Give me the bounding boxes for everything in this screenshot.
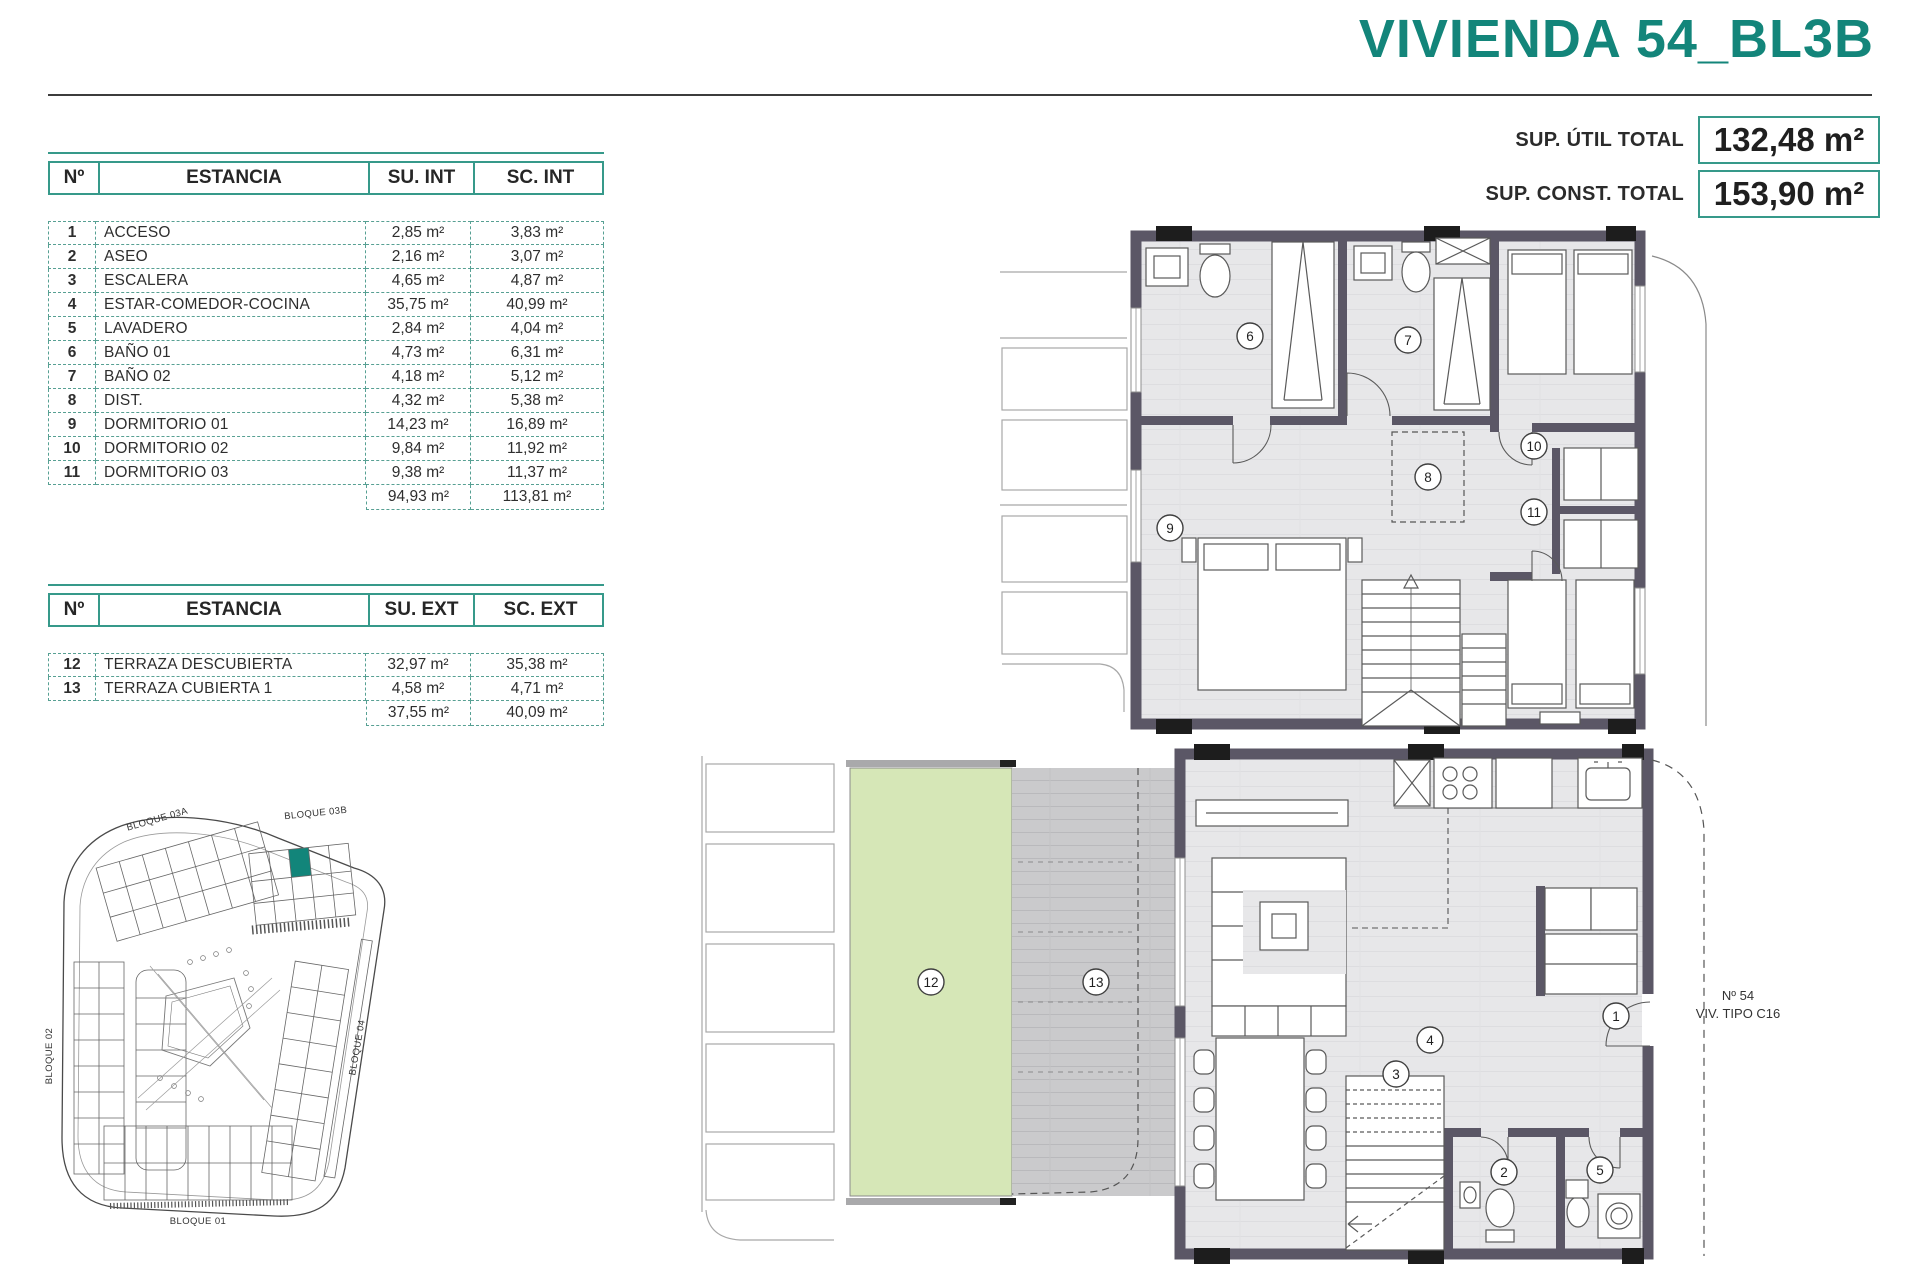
header-rule [48, 94, 1872, 96]
terrace-column [1000, 760, 1016, 767]
col-header-su: SU. EXT [368, 595, 473, 625]
cell-su: 2,16 m² [366, 245, 471, 269]
cell-num: 2 [48, 245, 96, 269]
total-su: 94,93 m² [366, 485, 471, 510]
plan-sheet: VIVIENDA 54_BL3B SUP. ÚTIL TOTAL 132,48 … [0, 0, 1920, 1280]
total-sc: 40,09 m² [471, 701, 604, 726]
cell-num: 13 [48, 677, 96, 701]
cell-num: 12 [48, 653, 96, 677]
table-total-row: 94,93 m² 113,81 m² [366, 485, 604, 510]
cell-sc: 5,12 m² [471, 365, 604, 389]
cell-su: 9,38 m² [366, 461, 471, 485]
built-area-label: SUP. CONST. TOTAL [1486, 183, 1684, 206]
table-body: 12TERRAZA DESCUBIERTA32,97 m²35,38 m²13T… [48, 653, 604, 701]
block-03a-units [96, 822, 278, 941]
total-sc: 113,81 m² [471, 485, 604, 510]
cell-room: BAÑO 01 [96, 341, 366, 365]
plot-boundary-line [1652, 256, 1706, 726]
cell-sc: 35,38 m² [471, 653, 604, 677]
cell-sc: 4,87 m² [471, 269, 604, 293]
unit-number-label: Nº 54 [1722, 988, 1754, 1003]
table-row: 3ESCALERA4,65 m²4,87 m² [48, 269, 604, 293]
block-02-label: BLOQUE 02 [44, 1028, 55, 1084]
room-badge: 11 [1521, 499, 1547, 525]
svg-text:2: 2 [1500, 1165, 1508, 1180]
site-location-plan: BLOQUE 03A BLOQUE 03B BLOQUE 02 BLOQUE 0… [40, 792, 400, 1232]
ground-floor-plan: Nº 54 VIV. TIPO C16 1 2 3 4 5 12 13 [700, 742, 1780, 1267]
cell-su: 9,84 m² [366, 437, 471, 461]
table-total-row: 37,55 m² 40,09 m² [366, 701, 604, 726]
cell-room: ACCESO [96, 221, 366, 245]
table-row: 12TERRAZA DESCUBIERTA32,97 m²35,38 m² [48, 653, 604, 677]
table-row: 4ESTAR-COMEDOR-COCINA35,75 m²40,99 m² [48, 293, 604, 317]
parking-hatch-strip [252, 922, 350, 930]
cell-su: 35,75 m² [366, 293, 471, 317]
table-row: 5LAVADERO2,84 m²4,04 m² [48, 317, 604, 341]
room-badge: 6 [1237, 323, 1263, 349]
room-badge: 4 [1417, 1027, 1443, 1053]
block-02-units [74, 962, 124, 1174]
cell-sc: 3,07 m² [471, 245, 604, 269]
table-header: Nº ESTANCIA SU. INT SC. INT [48, 161, 604, 195]
cell-room: DORMITORIO 02 [96, 437, 366, 461]
cell-room: ASEO [96, 245, 366, 269]
svg-text:4: 4 [1426, 1033, 1434, 1048]
room-badge: 10 [1521, 433, 1547, 459]
table-row: 6BAÑO 014,73 m²6,31 m² [48, 341, 604, 365]
terrace-top-rail [846, 760, 1016, 767]
bottom-hatch-strip [110, 1202, 290, 1206]
table-row: 7BAÑO 024,18 m²5,12 m² [48, 365, 604, 389]
svg-text:8: 8 [1424, 470, 1432, 485]
terrace-bottom-rail [846, 1198, 1016, 1205]
cell-num: 3 [48, 269, 96, 293]
svg-text:12: 12 [923, 975, 938, 990]
room-badge: 1 [1603, 1003, 1629, 1029]
useful-area-label: SUP. ÚTIL TOTAL [1515, 129, 1684, 152]
block-03b-label: BLOQUE 03B [284, 805, 348, 823]
upper-floor-plan: 6 7 8 9 10 11 [1000, 220, 1740, 740]
cell-sc: 11,92 m² [471, 437, 604, 461]
sofa-group [1212, 858, 1346, 1036]
total-su: 37,55 m² [366, 701, 471, 726]
cell-room: ESCALERA [96, 269, 366, 293]
cell-room: TERRAZA DESCUBIERTA [96, 653, 366, 677]
cell-su: 4,32 m² [366, 389, 471, 413]
svg-text:3: 3 [1392, 1067, 1400, 1082]
cell-sc: 16,89 m² [471, 413, 604, 437]
unit-type-label: VIV. TIPO C16 [1696, 1006, 1780, 1021]
room-badge: 12 [918, 969, 944, 995]
svg-text:11: 11 [1527, 505, 1541, 520]
internal-paths [138, 966, 280, 1110]
cell-num: 11 [48, 461, 96, 485]
master-bed [1182, 538, 1362, 690]
room-badge: 3 [1383, 1061, 1409, 1087]
cell-sc: 5,38 m² [471, 389, 604, 413]
adjacent-units-outline [1000, 272, 1127, 712]
col-header-sc: SC. INT [473, 163, 606, 193]
cell-sc: 3,83 m² [471, 221, 604, 245]
col-header-num: Nº [50, 163, 98, 193]
table-top-rule [48, 152, 604, 154]
trees [158, 948, 254, 1102]
cell-num: 7 [48, 365, 96, 389]
cell-su: 2,85 m² [366, 221, 471, 245]
cell-num: 6 [48, 341, 96, 365]
cell-room: ESTAR-COMEDOR-COCINA [96, 293, 366, 317]
cell-num: 9 [48, 413, 96, 437]
table-row: 13TERRAZA CUBIERTA 14,58 m²4,71 m² [48, 677, 604, 701]
table-row: 2ASEO2,16 m²3,07 m² [48, 245, 604, 269]
svg-text:5: 5 [1596, 1163, 1604, 1178]
svg-text:13: 13 [1088, 975, 1103, 990]
cell-room: DORMITORIO 03 [96, 461, 366, 485]
block-04-label: BLOQUE 04 [347, 1019, 368, 1076]
table-row: 8DIST.4,32 m²5,38 m² [48, 389, 604, 413]
svg-text:1: 1 [1612, 1009, 1620, 1024]
svg-text:9: 9 [1166, 521, 1174, 536]
table-top-rule [48, 584, 604, 586]
cell-room: DIST. [96, 389, 366, 413]
cell-su: 4,18 m² [366, 365, 471, 389]
block-01-units [104, 1126, 292, 1200]
built-area-value: 153,90 m² [1698, 170, 1880, 218]
exterior-area-table: Nº ESTANCIA SU. EXT SC. EXT 12TERRAZA DE… [48, 584, 604, 726]
useful-area-value: 132,48 m² [1698, 116, 1880, 164]
room-badge: 9 [1157, 515, 1183, 541]
cell-su: 14,23 m² [366, 413, 471, 437]
table-row: 9DORMITORIO 0114,23 m²16,89 m² [48, 413, 604, 437]
room-badge: 13 [1083, 969, 1109, 995]
interior-area-table: Nº ESTANCIA SU. INT SC. INT 1ACCESO2,85 … [48, 152, 604, 510]
svg-text:6: 6 [1246, 329, 1254, 344]
table-row: 10DORMITORIO 029,84 m²11,92 m² [48, 437, 604, 461]
table-header: Nº ESTANCIA SU. EXT SC. EXT [48, 593, 604, 627]
block-03a-label: BLOQUE 03A [125, 806, 189, 834]
useful-area-summary: SUP. ÚTIL TOTAL 132,48 m² [1515, 116, 1880, 164]
table-row: 1ACCESO2,85 m²3,83 m² [48, 221, 604, 245]
room-badge: 8 [1415, 464, 1441, 490]
col-header-sc: SC. EXT [473, 595, 606, 625]
block-03b-units [249, 843, 356, 925]
cell-room: DORMITORIO 01 [96, 413, 366, 437]
highlighted-unit-marker [289, 847, 312, 877]
svg-text:10: 10 [1526, 439, 1541, 454]
cell-sc: 6,31 m² [471, 341, 604, 365]
cell-num: 1 [48, 221, 96, 245]
cell-sc: 4,04 m² [471, 317, 604, 341]
svg-text:7: 7 [1404, 333, 1412, 348]
page-title: VIVIENDA 54_BL3B [1359, 8, 1874, 70]
col-header-num: Nº [50, 595, 98, 625]
tv-bench [1196, 800, 1348, 826]
cell-sc: 40,99 m² [471, 293, 604, 317]
col-header-room: ESTANCIA [98, 595, 368, 625]
terrace-column [1000, 1198, 1016, 1205]
cell-num: 8 [48, 389, 96, 413]
col-header-su: SU. INT [368, 163, 473, 193]
entry-closet [1536, 886, 1637, 996]
col-header-room: ESTANCIA [98, 163, 368, 193]
central-pool [162, 978, 250, 1066]
room-badge: 7 [1395, 327, 1421, 353]
table-body: 1ACCESO2,85 m²3,83 m²2ASEO2,16 m²3,07 m²… [48, 221, 604, 485]
cell-num: 5 [48, 317, 96, 341]
cell-room: LAVADERO [96, 317, 366, 341]
cell-sc: 4,71 m² [471, 677, 604, 701]
cell-su: 4,73 m² [366, 341, 471, 365]
table-row: 11DORMITORIO 039,38 m²11,37 m² [48, 461, 604, 485]
cell-su: 4,58 m² [366, 677, 471, 701]
stairs [1346, 1076, 1444, 1250]
room-badge: 5 [1587, 1157, 1613, 1183]
cell-sc: 11,37 m² [471, 461, 604, 485]
cell-num: 4 [48, 293, 96, 317]
cell-su: 4,65 m² [366, 269, 471, 293]
cell-room: TERRAZA CUBIERTA 1 [96, 677, 366, 701]
cell-su: 32,97 m² [366, 653, 471, 677]
room-badge: 2 [1491, 1159, 1517, 1185]
cell-su: 2,84 m² [366, 317, 471, 341]
adjacent-terraces-outline [702, 756, 834, 1240]
built-area-summary: SUP. CONST. TOTAL 153,90 m² [1486, 170, 1880, 218]
cell-room: BAÑO 02 [96, 365, 366, 389]
block-01-label: BLOQUE 01 [170, 1216, 226, 1227]
cell-num: 10 [48, 437, 96, 461]
